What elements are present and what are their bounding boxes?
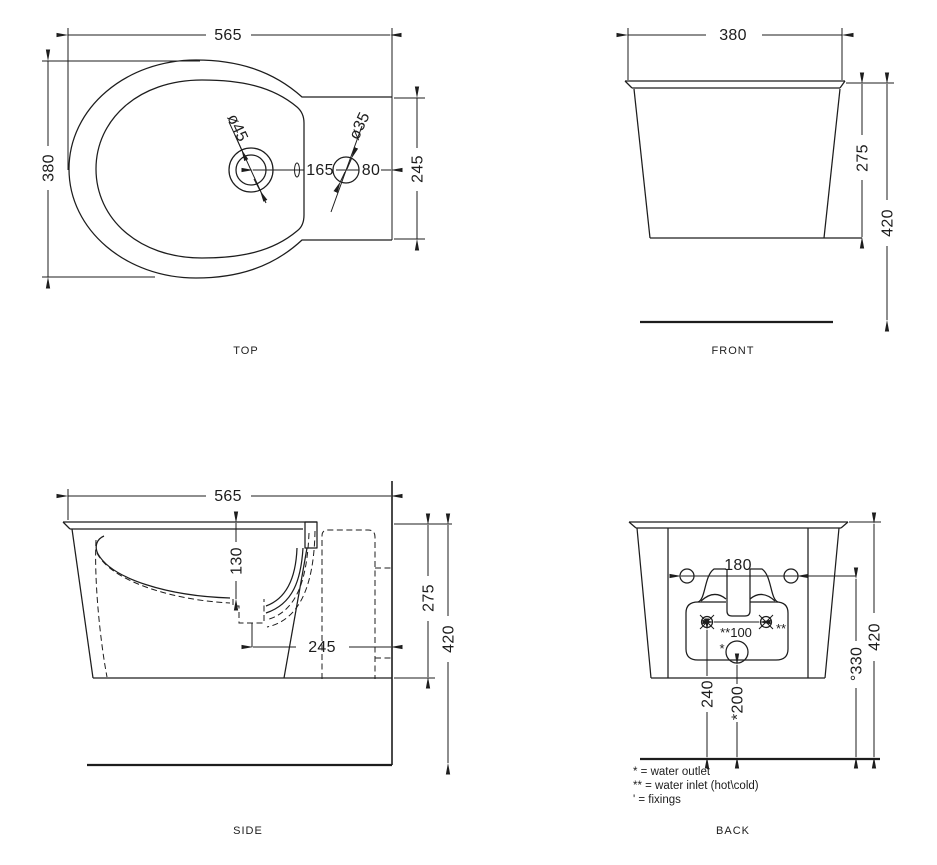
dim-side-length: 565 [214,488,242,505]
dim-side-rim-height: 275 [421,584,438,612]
top-view-outline [69,60,392,278]
dim-front-width: 380 [719,27,747,44]
front-view-label: FRONT [712,345,755,357]
outlet-marker: * [719,641,724,656]
side-view-dimensions [68,489,452,763]
legend-water-outlet: * = water outlet [633,766,711,778]
dim-top-width: 565 [214,27,242,44]
dim-side-bowl-depth: 130 [229,547,246,575]
dim-inlet-diameter: ø35 [346,110,373,143]
dim-outlet-height: *200 [730,686,747,720]
side-view-texts: 565 130 245 275 420 SIDE [214,488,457,837]
side-view: 565 130 245 275 420 SIDE [63,481,458,837]
dim-fixing-height: °330 [849,647,866,681]
dim-top-depth: 380 [41,154,58,182]
side-view-label: SIDE [233,825,263,837]
dim-inlet-centres: **100 [720,625,752,640]
legend-fixings: ' = fixings [633,794,681,806]
front-view: 380 275 420 FRONT [625,27,897,357]
dim-drain-to-inlet: 165 [306,162,334,179]
back-view-outline [629,522,880,759]
back-view: 180 **100 ** * 240 *200 °330 420 BACK * … [629,522,884,837]
front-view-outline [625,81,862,322]
dim-inlet-to-wall: 80 [362,162,380,179]
drawing-page: 565 380 245 165 80 ø45 ø35 TOP [0,0,937,865]
wall-recess-box [322,530,375,679]
dim-drain-diameter: ø45 [223,112,250,145]
top-view: 565 380 245 165 80 ø45 ø35 TOP [41,27,427,357]
dim-side-total-height: 420 [441,625,458,653]
bidet-technical-drawing: 565 380 245 165 80 ø45 ø35 TOP [0,0,937,865]
dim-side-drain-to-wall: 245 [308,639,336,656]
front-view-texts: 380 275 420 FRONT [712,27,897,357]
side-view-outline [63,481,392,765]
top-view-texts: 565 380 245 165 80 ø45 ø35 TOP [41,27,427,357]
legend-water-inlet: ** = water inlet (hot\cold) [633,780,759,792]
dim-front-rim-height: 275 [855,144,872,172]
top-view-label: TOP [233,345,258,357]
dim-top-cutout: 245 [410,155,427,183]
front-view-dimensions [628,28,894,320]
inlet-marker: ** [776,621,786,636]
back-view-label: BACK [716,825,750,837]
dim-inlet-height: 240 [700,680,717,708]
legend: * = water outlet ** = water inlet (hot\c… [633,766,759,806]
back-view-dimensions [681,522,881,757]
dim-fixing-centres: 180 [724,557,752,574]
dim-back-total-height: 420 [867,623,884,651]
dim-front-total-height: 420 [880,209,897,237]
